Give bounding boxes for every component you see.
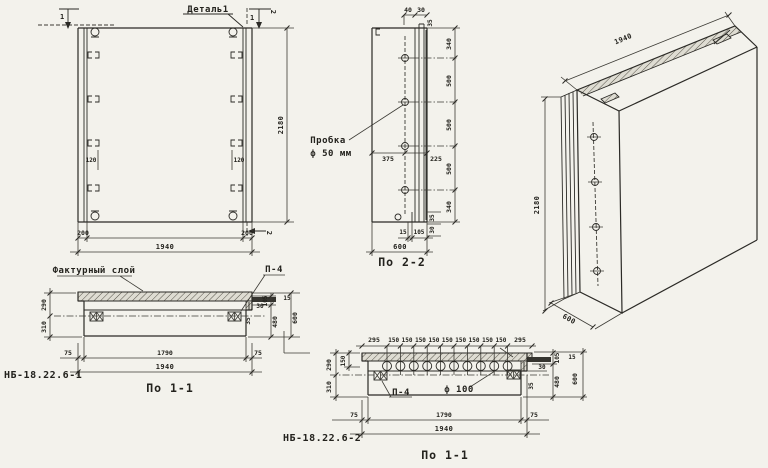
s11a-dim-600: 600	[291, 312, 299, 324]
s11b-title: По 1-1	[421, 448, 469, 462]
s11a-dim-480: 480	[271, 316, 279, 328]
detail-callout-label: Деталь1	[187, 5, 228, 15]
s11b-dim-295-right: 295	[514, 336, 526, 344]
section-mark-2-top: 2	[269, 10, 277, 15]
s11b-dim-150-9: 150	[495, 337, 506, 344]
s11b-dim-310: 310	[325, 381, 333, 393]
dim-340-bottom-label: 340	[445, 201, 453, 213]
s11b-plate-label: П-4	[392, 388, 410, 398]
iso-view: 1940 2180 600	[533, 12, 757, 330]
iso-panel-edges	[561, 26, 757, 313]
s11a-dim-290: 290	[40, 299, 48, 311]
dim-340-top-label: 340	[445, 38, 453, 50]
front-section-traces	[38, 8, 271, 236]
dim-105-bot-label: 105	[414, 229, 425, 236]
dim-40-label: 40	[404, 6, 412, 14]
s11a-dim-105: 105	[262, 295, 269, 306]
front-panel-outline	[78, 28, 252, 222]
dim-225-label: 225	[430, 155, 442, 163]
s11a-dim-lines	[44, 275, 300, 376]
dim-30-side-label: 30	[429, 226, 436, 234]
s11a-dim-75-right: 75	[254, 349, 262, 357]
s11b-dim-35: 35	[528, 382, 535, 390]
s11a-part-mark: НБ-18.22.6-1	[4, 370, 82, 381]
s11b-dim-150-5: 150	[442, 337, 453, 344]
s11b-dim-150-8: 150	[482, 337, 493, 344]
s11a-dim-75-left: 75	[64, 349, 72, 357]
s11b-dim-290: 290	[325, 359, 333, 371]
s11b-hole-label: ф 100	[444, 385, 474, 395]
plug-label-line1: Пробка	[310, 135, 346, 146]
technical-drawing-canvas: Деталь1 1 1 2 2 2180 200 200 1940 120 12…	[0, 0, 768, 468]
section-2-2-title: По 2-2	[378, 255, 426, 269]
s11a-dim-15: 15	[283, 295, 291, 302]
s11a-dim-310: 310	[40, 321, 48, 333]
dim-375-label: 375	[382, 155, 394, 163]
s11b-dim-150-6: 150	[455, 337, 466, 344]
front-anchor-offset-ticks	[98, 150, 232, 170]
s11b-dim-75-right: 75	[530, 411, 538, 419]
section-1-1-a-view: Фактурный слой П-4 290 310 30 35 15 105 …	[4, 265, 300, 395]
iso-dim-2180-label: 2180	[533, 196, 541, 214]
s11b-dim-1940: 1940	[435, 425, 453, 433]
s11b-dim-75-left: 75	[350, 411, 358, 419]
s11a-plate-label: П-4	[265, 265, 283, 275]
s11b-dim-600: 600	[571, 373, 579, 385]
iso-plug-marks	[587, 122, 604, 286]
s11b-dim-30: 30	[538, 364, 546, 371]
dim-120-right-label: 120	[234, 157, 245, 164]
s11b-dim-150-2: 150	[402, 337, 413, 344]
iso-dim-1940-label: 1940	[613, 32, 633, 46]
blueprint-page: Деталь1 1 1 2 2 2180 200 200 1940 120 12…	[0, 0, 768, 468]
dim-600-bot-label: 600	[393, 243, 407, 251]
s11b-dim-150-7: 150	[469, 337, 480, 344]
section-1-1-b-view: 295 150 150 150 150 150 150 150 150 150 …	[283, 331, 587, 462]
s22-dim-lines	[349, 13, 460, 257]
s11a-dim-35: 35	[245, 317, 252, 325]
s11b-texture-layer	[362, 353, 532, 361]
dim-200-right-label: 200	[241, 229, 253, 237]
s11b-dim-105: 105	[554, 352, 561, 363]
front-anchor-brackets	[88, 52, 242, 191]
dim-120-left-label: 120	[86, 157, 97, 164]
dim-35-top-label: 35	[427, 19, 434, 27]
s11b-dim-15: 15	[568, 354, 576, 361]
section-mark-2-bottom: 2	[265, 231, 273, 236]
s11b-dim-480: 480	[553, 376, 561, 388]
dim-500-b-label: 500	[445, 119, 453, 131]
texture-layer-label: Фактурный слой	[53, 266, 136, 276]
dim-200-left-label: 200	[77, 229, 89, 237]
plug-label-line2: ф 50 мм	[310, 149, 352, 159]
dim-500-a-label: 500	[445, 75, 453, 87]
dim-1940-label: 1940	[156, 243, 174, 251]
s11b-dim-150-side: 150	[340, 355, 347, 366]
s11b-gasket	[527, 357, 551, 362]
dim-15-bot-label: 15	[399, 229, 407, 236]
s11b-dim-150-4: 150	[428, 337, 439, 344]
section-mark-1-right: 1	[250, 14, 255, 22]
s11b-dim-1790: 1790	[436, 411, 452, 419]
dim-35-side-label: 35	[429, 214, 436, 222]
front-lifting-loops	[91, 28, 237, 220]
s11b-dim-150-1: 150	[388, 337, 399, 344]
s11b-dim-150-3: 150	[415, 337, 426, 344]
s11a-title: По 1-1	[146, 381, 194, 395]
dim-500-c-label: 500	[445, 163, 453, 175]
s11b-part-mark: НБ-18.22.6-2	[283, 433, 361, 444]
s11b-dim-295-left: 295	[368, 336, 380, 344]
dim-2180-label: 2180	[277, 116, 285, 134]
section-2-2-view: 40 30 35 340 500 500 500 340 375 225 Про…	[310, 6, 460, 269]
iso-dim-600-label: 600	[561, 312, 577, 326]
front-view: Деталь1 1 1 2 2 2180 200 200 1940 120 12…	[38, 5, 294, 256]
dim-30-top-label: 30	[417, 6, 425, 14]
section-mark-1-left: 1	[60, 13, 65, 21]
s11a-dim-1790: 1790	[157, 349, 173, 357]
iso-texture-band	[577, 26, 741, 96]
s11a-embedded-plates	[90, 312, 241, 321]
s22-outline	[372, 24, 427, 222]
s11a-texture-layer	[78, 292, 252, 301]
s11a-dim-1940: 1940	[156, 363, 174, 371]
